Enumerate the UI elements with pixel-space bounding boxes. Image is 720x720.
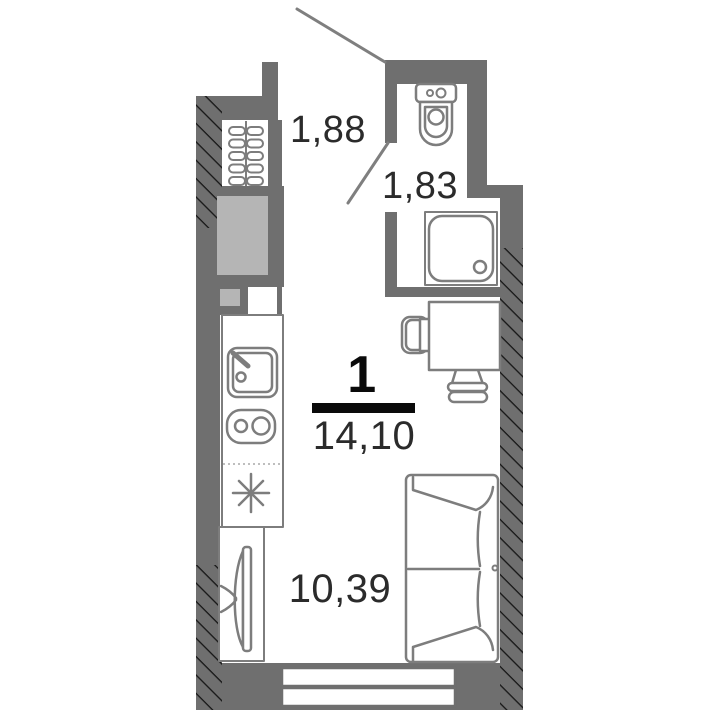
- wall-right-upper: [500, 198, 523, 250]
- kitchen-sink: [228, 348, 277, 397]
- vent-shaft-small: [220, 289, 240, 306]
- toilet: [416, 84, 456, 145]
- wall-radiator-strip: [268, 120, 282, 195]
- floor-plan-canvas: 1,88 1,83 10,39 1 14,10: [0, 0, 720, 720]
- shower-tray: [425, 212, 497, 285]
- wall-bath-left-lower: [385, 212, 397, 297]
- legend-divider: [312, 403, 415, 413]
- wall-right-step: [467, 185, 523, 198]
- hallway-area-label: 1,88: [290, 109, 366, 151]
- kitchen-counter: [222, 315, 283, 527]
- bathroom-area-label: 1,83: [382, 165, 458, 207]
- wall-stub: [277, 285, 282, 315]
- total-area-label: 14,10: [313, 414, 416, 458]
- wall-bath-bottom: [385, 287, 502, 297]
- desk: [429, 302, 500, 370]
- vent-shaft: [217, 196, 268, 275]
- wall-bath-left-upper: [385, 60, 397, 143]
- rooms-count-label: 1: [347, 346, 376, 404]
- wall-top-bar: [218, 96, 278, 120]
- radiator: [229, 121, 263, 186]
- living-area-label: 10,39: [289, 567, 392, 611]
- sofa: [406, 475, 498, 662]
- stove: [227, 410, 275, 443]
- floor-plan: 1,88 1,83 10,39 1 14,10: [0, 0, 720, 720]
- window: [282, 668, 455, 706]
- wall-bath-right: [467, 60, 487, 185]
- wall-hatch-right: [500, 248, 523, 710]
